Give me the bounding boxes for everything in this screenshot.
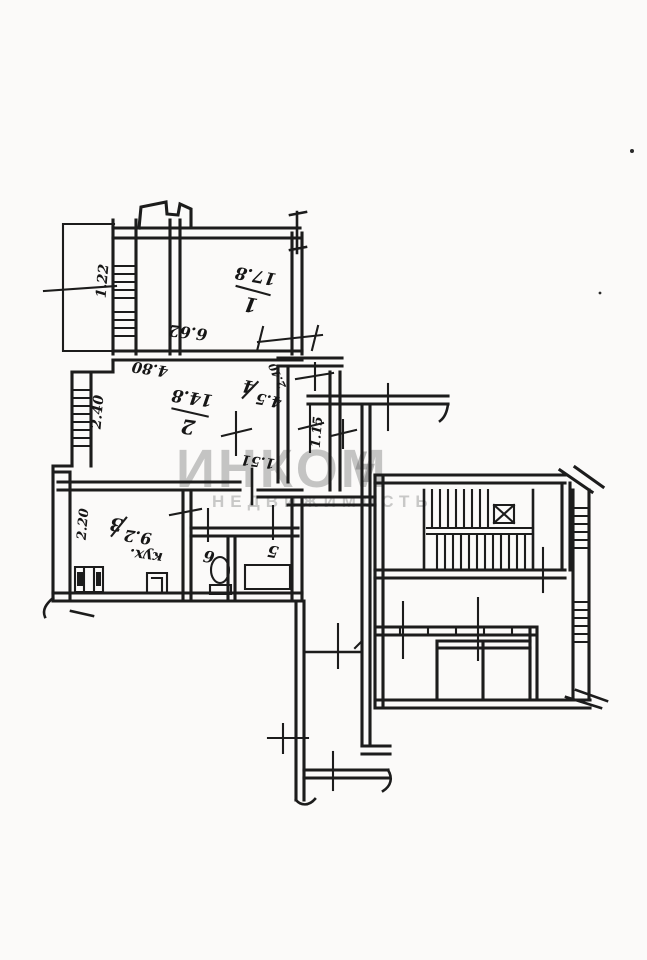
floor-plan-page: ИНКОМ ϟ НЕДВИЖИМОСТЬ bbox=[0, 0, 647, 960]
room1-room2-wall bbox=[113, 351, 302, 360]
floor-plan-drawing: 1 17.8 6.62 4.80 2 14.8 2.40 1.22 4 4.5 … bbox=[0, 0, 647, 960]
dim-room1-length: 6.62 bbox=[167, 321, 208, 345]
room-3-area: 9.2 bbox=[123, 526, 153, 549]
room-3-annotation: кух. bbox=[128, 545, 163, 567]
room-2-label: 2 14.8 bbox=[166, 384, 214, 441]
doorway-tick bbox=[222, 412, 251, 455]
kitchen-hall-wall bbox=[183, 492, 191, 601]
room-3-kitchen-label: 3 9.2 bbox=[107, 513, 154, 549]
vent-shaft-bump bbox=[139, 202, 191, 228]
room-5-number: 5 bbox=[266, 541, 280, 562]
south-wall-kitchen bbox=[44, 593, 302, 617]
kitchen-sink-icon bbox=[147, 573, 167, 593]
room-6-number: 6 bbox=[202, 546, 216, 567]
room-1-label: 1 17.8 bbox=[228, 262, 278, 320]
room-2-area: 14.8 bbox=[170, 384, 214, 410]
west-wall-kitchen bbox=[53, 466, 72, 598]
room-2-number: 2 bbox=[179, 414, 197, 440]
hall4-east-wall bbox=[330, 372, 340, 490]
dim-kitchen-window: 2.20 bbox=[75, 508, 93, 542]
corridor-walls bbox=[268, 497, 391, 804]
hall4-north-wall bbox=[278, 358, 342, 366]
room-1-number: 1 bbox=[242, 292, 260, 318]
elevator-icon bbox=[494, 505, 514, 523]
stairwell-block bbox=[375, 467, 607, 708]
scan-specks bbox=[599, 149, 634, 294]
room-1-area: 17.8 bbox=[233, 262, 277, 289]
dim-corridor-width: 1.15 bbox=[309, 416, 327, 449]
bathtub-icon bbox=[245, 565, 290, 589]
north-wall-room1 bbox=[113, 202, 306, 253]
staircase-icon bbox=[424, 490, 533, 570]
dimension-tick bbox=[257, 326, 322, 351]
doorway-tick bbox=[170, 509, 201, 515]
dim-hall-length: 1.51 bbox=[240, 451, 276, 471]
stove-icon bbox=[75, 567, 103, 592]
room2-south-wall bbox=[58, 469, 302, 504]
dim-room2-window: 2.40 bbox=[88, 394, 107, 431]
dim-balcony: 1.22 bbox=[94, 263, 113, 299]
doorway-tick bbox=[331, 420, 356, 448]
